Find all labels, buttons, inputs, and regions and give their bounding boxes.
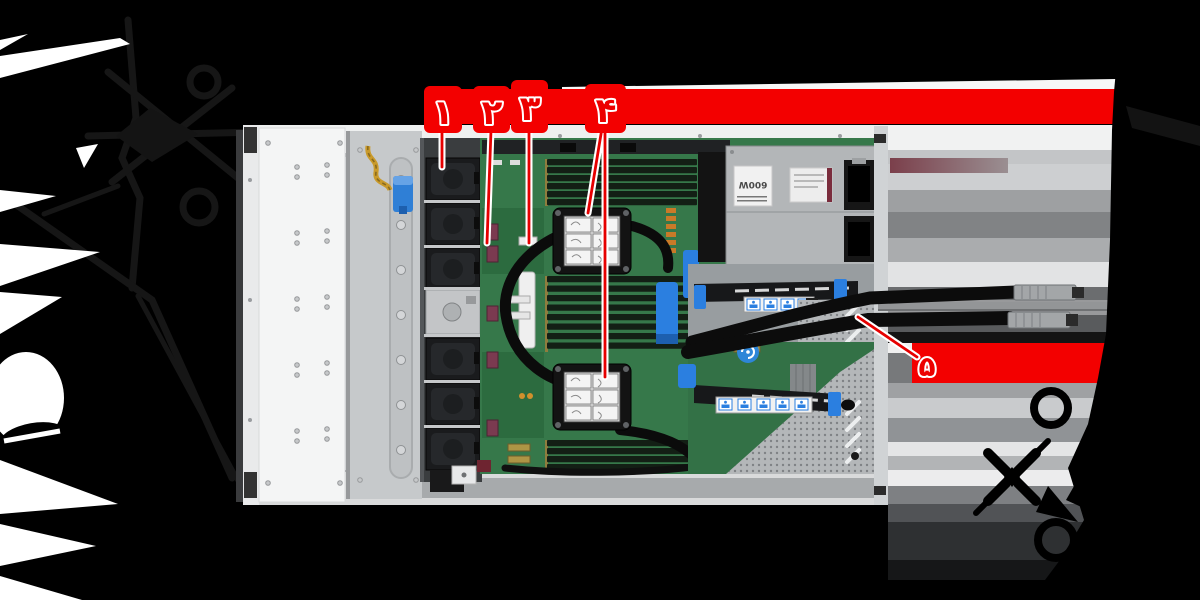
chassis-shadow: [236, 130, 243, 502]
scene-canvas: 600W: [0, 0, 1200, 600]
callout-number-3: ۳: [520, 89, 541, 129]
blue-touch-latch: [393, 176, 413, 214]
maroon-smear: [890, 158, 1008, 173]
fan-filler-module: [426, 290, 480, 334]
fan-module: [426, 248, 480, 290]
psu-label-2: [790, 168, 832, 202]
riser-2: [678, 341, 876, 474]
server-annotated-hero: 600W: [0, 0, 1200, 600]
fan-bank: [420, 138, 482, 492]
fan-module: [426, 203, 480, 245]
callout-number-1: ۱: [433, 93, 454, 133]
fan-module: [426, 158, 480, 200]
fan-module: [426, 428, 480, 470]
callout-number-4: ۴: [596, 91, 617, 131]
fan-module: [426, 338, 480, 380]
cpu-heatsink-1: [553, 208, 631, 274]
motherboard: 600W: [477, 126, 892, 505]
callout-number-2: ۲: [482, 93, 503, 133]
psu: 600W: [726, 146, 876, 266]
cable-connector-2: [1008, 312, 1078, 328]
fan-module: [426, 383, 480, 425]
front-bezel: [243, 125, 259, 505]
drive-bay-cover: [259, 128, 345, 502]
cable-connector-1: [1014, 285, 1084, 300]
psu-wattage: 600W: [739, 179, 768, 189]
cpu-heatsink-2: [553, 364, 631, 430]
callout-banner-right: [912, 343, 1105, 383]
empty-bay: [698, 152, 728, 262]
divider-panel: [346, 131, 422, 499]
callout-number-5: ۵: [918, 350, 935, 383]
